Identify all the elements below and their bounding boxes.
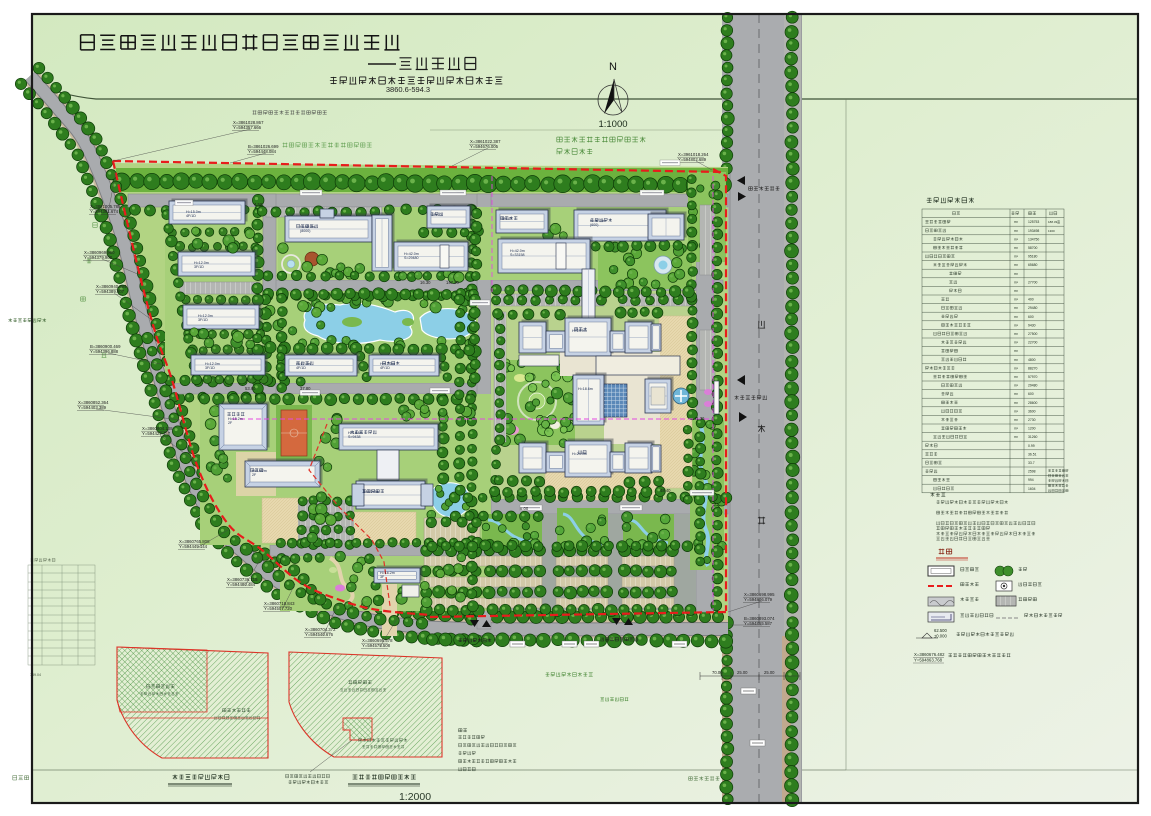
svg-text:Y=594379.908: Y=594379.908 bbox=[84, 255, 113, 260]
svg-text:37.80: 37.80 bbox=[300, 386, 311, 391]
svg-text:3F/1D: 3F/1D bbox=[205, 366, 215, 370]
svg-text:Y=594865.587: Y=594865.587 bbox=[744, 621, 773, 626]
svg-text:4F/1D: 4F/1D bbox=[186, 214, 196, 218]
svg-text:X=3860676.482: X=3860676.482 bbox=[914, 652, 945, 657]
svg-text:3F/1D: 3F/1D bbox=[198, 318, 208, 322]
svg-text:25.00: 25.00 bbox=[764, 670, 775, 675]
svg-text:1:1000: 1:1000 bbox=[598, 119, 627, 130]
svg-text:0.99: 0.99 bbox=[1028, 444, 1035, 448]
svg-text:147.20: 147.20 bbox=[446, 280, 459, 285]
svg-text:H=12.8m: H=12.8m bbox=[364, 490, 379, 494]
svg-text:Y=594575.508: Y=594575.508 bbox=[362, 643, 391, 648]
svg-text:994: 994 bbox=[1028, 478, 1034, 482]
svg-text:S=9438: S=9438 bbox=[348, 435, 361, 439]
svg-text:600: 600 bbox=[1028, 392, 1034, 396]
svg-text:29480: 29480 bbox=[1028, 384, 1038, 388]
svg-text:Y=594507.720: Y=594507.720 bbox=[264, 606, 293, 611]
svg-text:16.30: 16.30 bbox=[420, 280, 431, 285]
svg-text:22700: 22700 bbox=[1028, 341, 1038, 345]
svg-text:S=33158: S=33158 bbox=[510, 253, 525, 257]
svg-text:95180: 95180 bbox=[1028, 255, 1038, 259]
svg-text:27500: 27500 bbox=[1028, 332, 1038, 336]
svg-text:29480: 29480 bbox=[1028, 306, 1038, 310]
svg-text:1604: 1604 bbox=[1028, 487, 1036, 491]
svg-text:Y=594403.389: Y=594403.389 bbox=[78, 405, 107, 410]
svg-text:Y=594480.484: Y=594480.484 bbox=[227, 582, 256, 587]
svg-text:65680: 65680 bbox=[1028, 263, 1038, 267]
svg-text:4.50: 4.50 bbox=[254, 202, 263, 207]
svg-text:188.33亩: 188.33亩 bbox=[1048, 219, 1060, 224]
svg-text:4F/1D: 4F/1D bbox=[380, 366, 390, 370]
svg-text:193498: 193498 bbox=[1028, 229, 1039, 233]
svg-text:3860.6-594.3: 3860.6-594.3 bbox=[386, 85, 430, 94]
svg-text:88270: 88270 bbox=[1028, 366, 1038, 370]
svg-text:S=29480: S=29480 bbox=[404, 256, 419, 260]
svg-text:31260: 31260 bbox=[1028, 435, 1038, 439]
svg-text:9430: 9430 bbox=[1028, 323, 1036, 327]
svg-text:134750: 134750 bbox=[1028, 237, 1039, 241]
svg-text:(8000): (8000) bbox=[300, 229, 310, 233]
svg-text:(600): (600) bbox=[590, 223, 598, 227]
svg-text:Y=594449.144: Y=594449.144 bbox=[179, 544, 208, 549]
svg-text:Y=594396.888: Y=594396.888 bbox=[90, 349, 119, 354]
svg-text:8.00: 8.00 bbox=[520, 506, 529, 511]
svg-text:Y=594802.689: Y=594802.689 bbox=[678, 157, 707, 162]
svg-text:Y=594422.457: Y=594422.457 bbox=[142, 431, 171, 436]
svg-text:3600: 3600 bbox=[1028, 409, 1036, 413]
svg-text:H=18.6m: H=18.6m bbox=[578, 387, 593, 391]
svg-text:33.7: 33.7 bbox=[1028, 461, 1035, 465]
svg-text:Y=594676.005: Y=594676.005 bbox=[470, 144, 499, 149]
svg-text:25.00: 25.00 bbox=[737, 670, 748, 675]
svg-text:27700: 27700 bbox=[1028, 280, 1038, 284]
svg-text:1:2000: 1:2000 bbox=[399, 791, 431, 803]
svg-text:2730: 2730 bbox=[1028, 418, 1036, 422]
svg-text:28600: 28600 bbox=[1028, 401, 1038, 405]
svg-text:4800: 4800 bbox=[1028, 358, 1036, 362]
svg-text:1200: 1200 bbox=[1028, 427, 1036, 431]
svg-text:Y=594357.666: Y=594357.666 bbox=[233, 125, 262, 130]
svg-text:Y=594540.676: Y=594540.676 bbox=[305, 632, 334, 637]
svg-text:N: N bbox=[609, 61, 617, 73]
svg-text:1300: 1300 bbox=[1048, 229, 1055, 233]
svg-text:41.36: 41.36 bbox=[694, 416, 705, 421]
svg-text:Y=594389.907: Y=594389.907 bbox=[96, 289, 125, 294]
svg-text:600: 600 bbox=[1028, 315, 1034, 319]
svg-text:70.00: 70.00 bbox=[712, 670, 723, 675]
svg-text:125753: 125753 bbox=[1028, 220, 1039, 224]
svg-text:Y=594448.084: Y=594448.084 bbox=[248, 149, 277, 154]
svg-text:4F/1D: 4F/1D bbox=[296, 366, 306, 370]
svg-text:57970: 57970 bbox=[1028, 375, 1038, 379]
svg-text:400: 400 bbox=[1028, 298, 1034, 302]
svg-text:Y=594863.768: Y=594863.768 bbox=[914, 658, 943, 663]
svg-text:58700: 58700 bbox=[1028, 246, 1038, 250]
svg-text:Y=594806.079: Y=594806.079 bbox=[744, 597, 773, 602]
svg-text:±0.000: ±0.000 bbox=[934, 634, 947, 639]
svg-text:48.40: 48.40 bbox=[660, 488, 671, 493]
svg-text:53.60: 53.60 bbox=[245, 386, 256, 391]
svg-text:2598: 2598 bbox=[1028, 470, 1036, 474]
svg-text:62.500: 62.500 bbox=[934, 628, 947, 633]
svg-text:Y=594361.674: Y=594361.674 bbox=[90, 209, 119, 214]
svg-text:36.51: 36.51 bbox=[1028, 452, 1037, 456]
svg-text:3F/1D: 3F/1D bbox=[194, 265, 204, 269]
